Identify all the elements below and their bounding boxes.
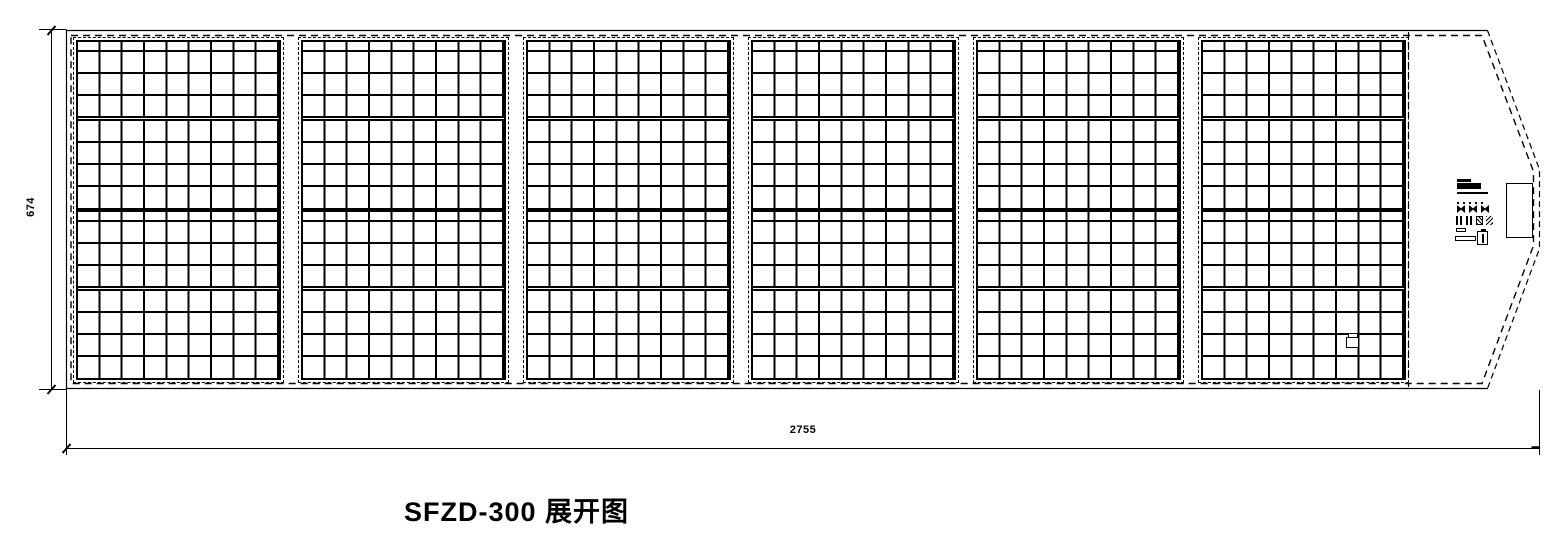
cell-row — [78, 266, 279, 288]
solar-panel-3 — [526, 40, 731, 380]
height-dimension-label: 674 — [25, 197, 37, 217]
solar-panel-2 — [301, 40, 506, 380]
fastener-tab — [1348, 333, 1358, 338]
drawing-title: SFZD-300 展开图 — [404, 490, 629, 529]
cell-row — [303, 187, 504, 208]
care-icon — [1481, 205, 1489, 213]
cert-mark-icon — [1466, 216, 1473, 225]
care-icon — [1469, 205, 1477, 213]
cell-row — [78, 244, 279, 266]
panel-string-group — [1203, 42, 1404, 208]
panel-string-group — [528, 212, 729, 378]
cell-row — [978, 187, 1179, 208]
weee-bin-icon — [1477, 231, 1488, 245]
cell-row — [78, 143, 279, 165]
cell-row — [78, 222, 279, 244]
cell-row — [303, 291, 504, 313]
panel-string-group — [303, 212, 504, 378]
cell-row — [1203, 244, 1404, 266]
fastener-patch — [1346, 333, 1360, 348]
cell-row — [1203, 335, 1404, 357]
panel-string-group — [978, 42, 1179, 208]
cell-row — [78, 121, 279, 143]
cell-row — [528, 143, 729, 165]
cell-row — [303, 335, 504, 357]
cell-row — [753, 52, 954, 74]
cell-row — [753, 266, 954, 288]
care-ticks — [1457, 202, 1487, 204]
cell-row — [78, 212, 279, 222]
spec-bar-small — [1456, 228, 1466, 232]
cell-row — [978, 266, 1179, 288]
cell-row — [978, 74, 1179, 96]
cell-row — [528, 313, 729, 335]
cell-row — [303, 357, 504, 378]
cert-mark-icon — [1456, 216, 1463, 225]
certification-marks — [1456, 216, 1493, 225]
cell-row — [528, 74, 729, 96]
cell-row — [978, 291, 1179, 313]
cell-row — [528, 42, 729, 52]
cell-row — [1203, 187, 1404, 208]
cert-mark-icon — [1486, 216, 1493, 225]
cell-row — [1203, 266, 1404, 288]
spec-bar-wide — [1455, 236, 1476, 241]
care-icon — [1457, 205, 1465, 213]
height-dimension — [39, 26, 67, 394]
cell-row — [978, 222, 1179, 244]
cell-row — [978, 42, 1179, 52]
cell-row — [1203, 52, 1404, 74]
cell-row — [528, 244, 729, 266]
cell-row — [753, 143, 954, 165]
cell-row — [528, 187, 729, 208]
cell-row — [978, 96, 1179, 118]
cell-row — [978, 143, 1179, 165]
panel-string-group — [528, 42, 729, 208]
panel-string-group — [753, 42, 954, 208]
cell-row — [753, 357, 954, 378]
cell-row — [78, 313, 279, 335]
care-instruction-icons — [1457, 205, 1489, 213]
cell-row — [78, 165, 279, 187]
panels-row — [76, 40, 1406, 380]
cell-row — [1203, 212, 1404, 222]
cell-row — [1203, 74, 1404, 96]
cell-row — [303, 143, 504, 165]
panel-string-group — [753, 212, 954, 378]
cell-row — [78, 42, 279, 52]
cell-row — [1203, 143, 1404, 165]
cell-row — [528, 291, 729, 313]
panel-string-group — [978, 212, 1179, 378]
panel-string-group — [1203, 212, 1404, 378]
cell-row — [78, 357, 279, 378]
width-dimension — [63, 389, 1540, 455]
cell-row — [528, 357, 729, 378]
panel-string-group — [78, 42, 279, 208]
cell-row — [528, 222, 729, 244]
cell-row — [303, 244, 504, 266]
flap-print-block — [1455, 179, 1491, 245]
cell-row — [1203, 42, 1404, 52]
fastener-square — [1346, 337, 1359, 348]
cell-row — [303, 266, 504, 288]
cell-row — [528, 165, 729, 187]
cell-row — [303, 121, 504, 143]
solar-panel-5 — [976, 40, 1181, 380]
cell-row — [528, 96, 729, 118]
cell-row — [978, 121, 1179, 143]
width-dimension-label: 2755 — [790, 424, 816, 436]
cell-row — [1203, 313, 1404, 335]
cell-row — [1203, 121, 1404, 143]
cell-row — [753, 96, 954, 118]
cell-row — [303, 165, 504, 187]
cell-row — [78, 74, 279, 96]
cell-row — [753, 244, 954, 266]
cell-row — [753, 212, 954, 222]
cell-row — [78, 335, 279, 357]
cell-row — [978, 313, 1179, 335]
cell-row — [78, 291, 279, 313]
cell-row — [753, 291, 954, 313]
solar-panel-4 — [751, 40, 956, 380]
panel-string-group — [78, 212, 279, 378]
cell-row — [978, 335, 1179, 357]
cell-row — [78, 187, 279, 208]
cell-row — [753, 222, 954, 244]
cell-row — [978, 52, 1179, 74]
cell-row — [303, 42, 504, 52]
cell-row — [1203, 222, 1404, 244]
cell-row — [753, 74, 954, 96]
cell-row — [978, 357, 1179, 378]
panel-string-group — [303, 42, 504, 208]
cell-row — [528, 266, 729, 288]
cell-row — [753, 335, 954, 357]
cell-row — [303, 96, 504, 118]
cell-row — [1203, 165, 1404, 187]
cell-row — [528, 52, 729, 74]
cell-row — [978, 212, 1179, 222]
cell-row — [303, 212, 504, 222]
solar-panel-6 — [1201, 40, 1406, 380]
cell-row — [303, 52, 504, 74]
cell-row — [528, 335, 729, 357]
cell-row — [303, 74, 504, 96]
cell-row — [753, 187, 954, 208]
cell-row — [528, 212, 729, 222]
cell-row — [753, 313, 954, 335]
cert-mark-icon — [1476, 216, 1483, 225]
cell-row — [753, 121, 954, 143]
cell-row — [1203, 96, 1404, 118]
label-pocket-rect — [1506, 183, 1533, 238]
cell-row — [1203, 291, 1404, 313]
cell-row — [303, 222, 504, 244]
cell-row — [78, 96, 279, 118]
cell-row — [1203, 357, 1404, 378]
cell-row — [753, 165, 954, 187]
cell-row — [753, 42, 954, 52]
cell-row — [978, 244, 1179, 266]
cell-row — [978, 165, 1179, 187]
drawing-canvas: 674 2755 SFZD-300 展开图 — [0, 0, 1566, 539]
cell-row — [78, 52, 279, 74]
cell-row — [528, 121, 729, 143]
cell-row — [303, 313, 504, 335]
solar-panel-1 — [76, 40, 281, 380]
